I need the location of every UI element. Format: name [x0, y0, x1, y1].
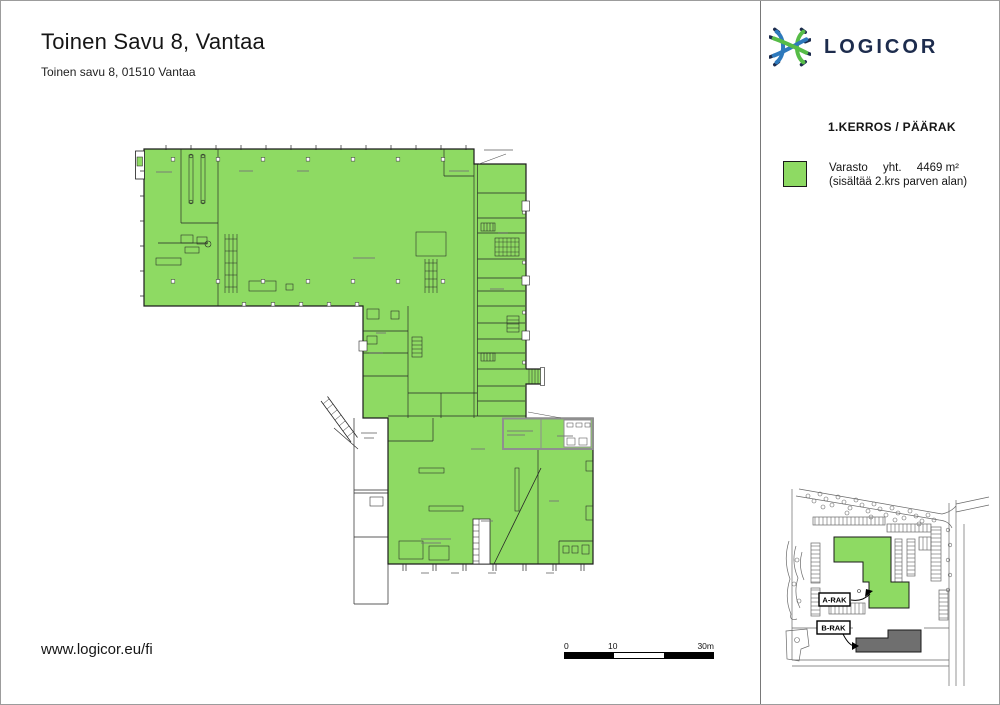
- building-b-label: B-RAK: [817, 621, 859, 650]
- logicor-wordmark: LOGICOR: [824, 36, 938, 59]
- scale-bar-strip: [564, 652, 714, 659]
- building-a-label-text: A-RAK: [822, 596, 847, 605]
- ramp-stairs: [321, 397, 358, 450]
- legend-name: Varasto: [829, 161, 868, 175]
- scale-label-end: 30m: [697, 641, 714, 651]
- floor-heading: 1.KERROS / PÄÄRAK: [828, 120, 956, 134]
- logicor-mark-icon: [769, 27, 811, 67]
- website-url[interactable]: www.logicor.eu/fi: [41, 641, 153, 658]
- panel-divider: [760, 1, 761, 705]
- scale-segment-black: [565, 653, 614, 658]
- legend-area-value: 4469 m²: [917, 161, 959, 175]
- left-annex-tab: [136, 151, 145, 179]
- building-b-label-text: B-RAK: [821, 624, 846, 633]
- floor-plan: [1, 1, 761, 705]
- legend-note: (sisältää 2.krs parven alan): [829, 175, 967, 189]
- scale-label-mid: 10: [608, 641, 617, 651]
- legend-total-label: yht.: [883, 161, 902, 175]
- legend-swatch: [783, 161, 807, 187]
- site-marker: [858, 590, 861, 593]
- scale-label-start: 0: [564, 641, 569, 651]
- scale-segment-white: [614, 653, 663, 658]
- building-b-shape: [856, 630, 921, 652]
- corridor: [354, 418, 388, 604]
- plan-sheet-page: Toinen Savu 8, Vantaa Toinen savu 8, 015…: [0, 0, 1000, 705]
- logicor-logo: LOGICOR: [769, 27, 938, 67]
- scale-segment-black: [664, 653, 713, 658]
- legend: Varasto yht. 4469 m² (sisältää 2.krs par…: [783, 161, 967, 189]
- scale-bar: 0 10 30m: [564, 641, 714, 659]
- site-map: A-RAK B-RAK: [784, 476, 991, 688]
